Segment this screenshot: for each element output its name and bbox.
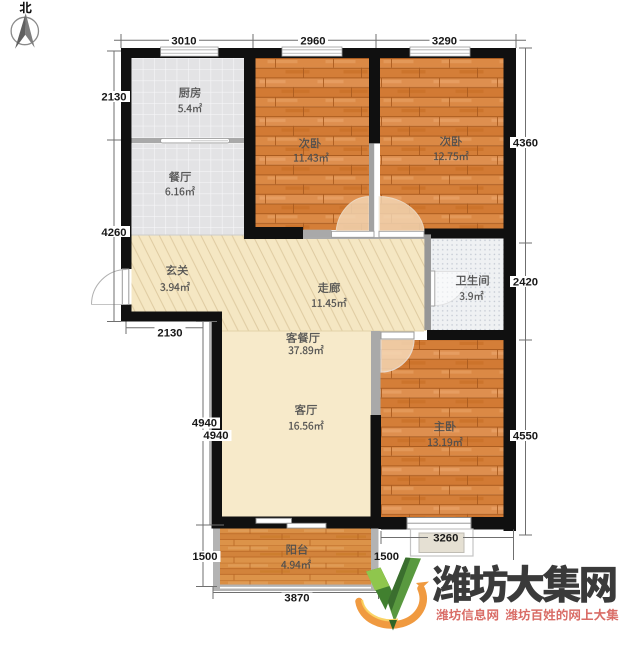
svg-text:4940: 4940 bbox=[192, 417, 217, 429]
svg-text:4940: 4940 bbox=[203, 430, 228, 442]
svg-text:1500: 1500 bbox=[192, 551, 217, 563]
svg-text:3260: 3260 bbox=[433, 533, 458, 545]
svg-text:4360: 4360 bbox=[513, 137, 538, 149]
svg-text:2130: 2130 bbox=[157, 327, 182, 339]
svg-text:2130: 2130 bbox=[101, 92, 126, 104]
svg-text:3010: 3010 bbox=[171, 35, 196, 47]
svg-text:4550: 4550 bbox=[513, 430, 538, 442]
svg-text:3290: 3290 bbox=[432, 35, 457, 47]
svg-text:2960: 2960 bbox=[300, 35, 325, 47]
svg-text:4260: 4260 bbox=[101, 227, 126, 239]
svg-text:1500: 1500 bbox=[374, 551, 399, 563]
svg-text:3870: 3870 bbox=[284, 593, 309, 605]
svg-text:2420: 2420 bbox=[513, 276, 538, 288]
